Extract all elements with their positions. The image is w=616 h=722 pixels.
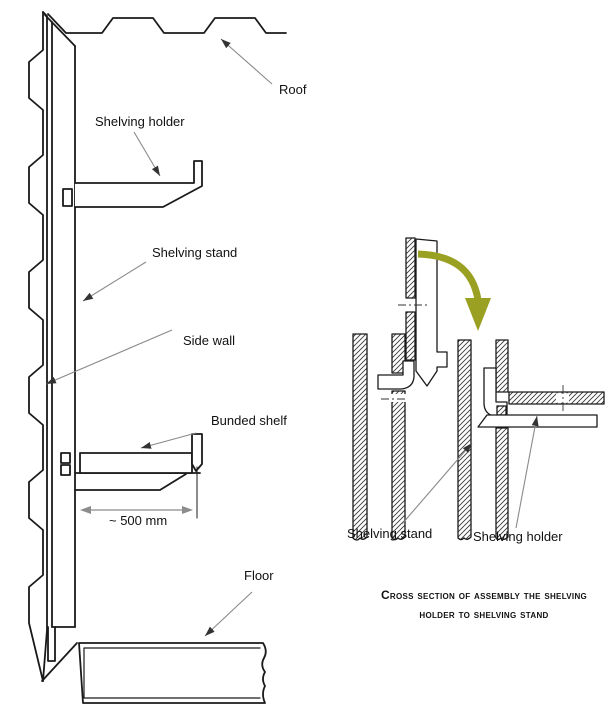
leader-shelving-stand	[83, 262, 146, 301]
dimension-arrow-right	[182, 506, 193, 514]
shelving-stand-foot	[48, 627, 55, 661]
dimension-arrow-left	[80, 506, 91, 514]
cs-right-outer-stand-wall	[458, 340, 471, 540]
cs-right-inner-stand-wall-bottom	[496, 428, 508, 540]
leader-shelving-holder	[134, 132, 160, 176]
roof-profile	[48, 14, 286, 33]
cs-holder-web-lower	[406, 312, 415, 360]
leader-floor	[205, 592, 252, 636]
cs-right-inner-stand-wall-top	[496, 340, 508, 392]
side-wall-corrugation	[29, 12, 43, 681]
label-cs-shelving-stand: Shelving stand	[347, 527, 432, 541]
label-dimension-500mm: ~ 500 mm	[109, 514, 167, 528]
upper-shelving-holder	[75, 161, 202, 207]
lower-holder-bottom-edge	[75, 474, 186, 490]
cs-left-slot-gap	[391, 394, 406, 402]
shelving-stand-bevel	[45, 15, 75, 46]
caption-line-2: holder to shelving stand	[352, 605, 616, 624]
caption-line-1: Cross section of assembly the shelving	[352, 586, 616, 605]
leader-side-wall	[46, 330, 172, 384]
cs-holder-lower-flange	[478, 415, 597, 427]
shelf-clip-bottom	[61, 465, 70, 475]
shelf-clip-top	[61, 453, 70, 463]
label-bunded-shelf: Bunded shelf	[211, 414, 287, 428]
label-shelving-holder: Shelving holder	[95, 115, 185, 129]
label-side-wall: Side wall	[183, 334, 235, 348]
label-roof: Roof	[279, 83, 306, 97]
bunded-shelf-lip	[192, 434, 202, 471]
cross-section-caption: Cross section of assembly the shelving h…	[352, 586, 616, 623]
cs-shelf-arm-break	[556, 393, 569, 402]
leader-roof	[221, 39, 272, 84]
cs-holder-web-upper	[406, 238, 415, 298]
cs-left-inner-stand-wall-bottom	[392, 391, 405, 540]
cs-left-outer-stand-wall	[353, 334, 367, 540]
leader-cs-shelving-holder	[516, 416, 537, 528]
insertion-arrow-head	[465, 298, 491, 331]
label-cs-shelving-holder: Shelving holder	[473, 530, 563, 544]
upper-holder-clip	[63, 189, 72, 206]
label-floor: Floor	[244, 569, 274, 583]
cross-section-view	[353, 238, 604, 540]
floor-slab	[79, 643, 266, 703]
cs-hook-clip	[497, 406, 506, 415]
bunded-shelf-tray	[80, 453, 192, 473]
technical-drawing-page: Roof Shelving holder Shelving stand Side…	[0, 0, 616, 722]
label-shelving-stand: Shelving stand	[152, 246, 237, 260]
leader-bunded-shelf	[141, 433, 196, 448]
